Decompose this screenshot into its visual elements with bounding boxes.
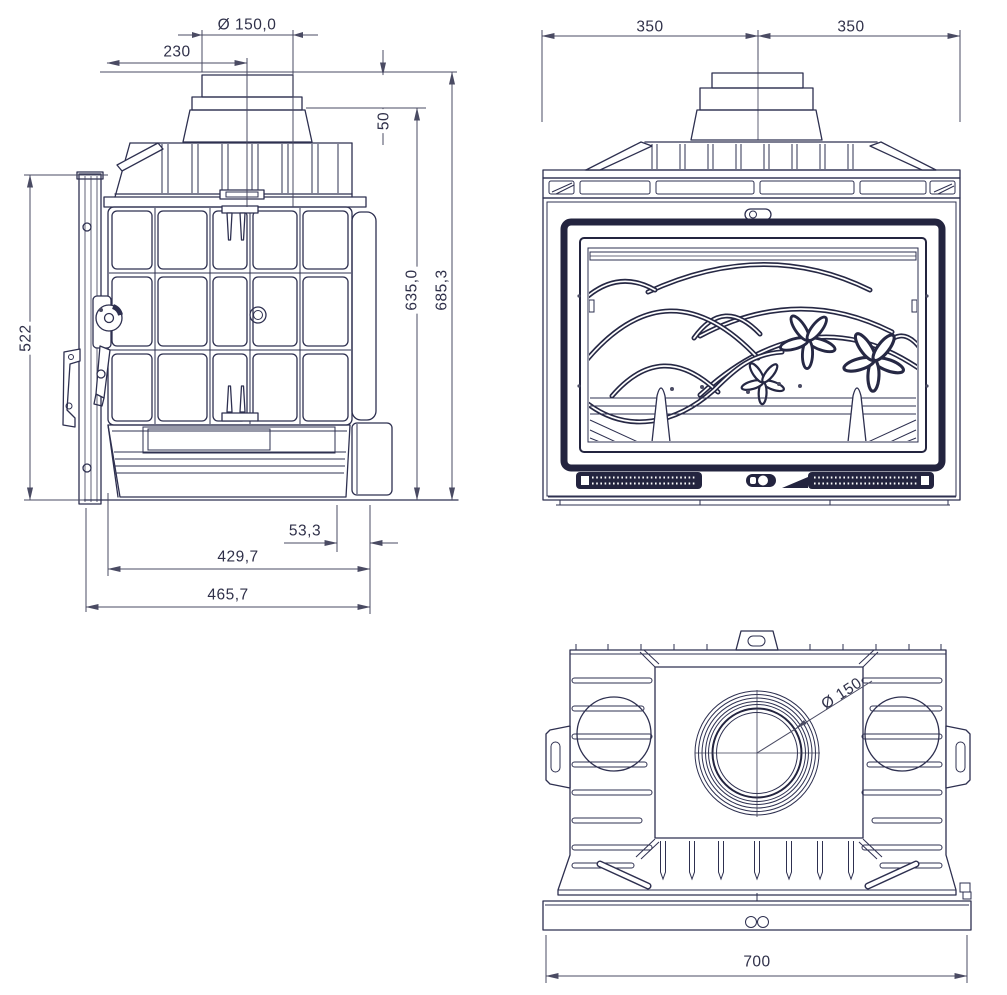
dim-front-right-half: 350 xyxy=(834,19,867,35)
dim-pipe-center-offset: 230 xyxy=(160,44,193,60)
dim-door-height: 522 xyxy=(18,321,34,354)
dim-body-depth: 429,7 xyxy=(214,549,261,565)
dim-pipe-diameter: Ø 150,0 xyxy=(215,17,280,33)
dim-total-height: 685,3 xyxy=(434,266,450,313)
dim-total-depth: 465,7 xyxy=(204,587,251,603)
front-view xyxy=(543,34,960,505)
dim-front-left-half: 350 xyxy=(633,19,666,35)
technical-drawing-page: Ø 150,0 230 50 635,0 685,3 522 53,3 429,… xyxy=(0,0,1007,995)
top-view xyxy=(543,631,971,930)
dim-total-width: 700 xyxy=(740,954,773,970)
front-view-dimensions xyxy=(542,30,960,122)
drawing-canvas xyxy=(0,0,1007,995)
dim-rear-overhang: 53,3 xyxy=(286,523,324,539)
dim-body-height: 635,0 xyxy=(404,266,420,313)
side-view xyxy=(63,75,458,504)
dim-collar-height: 50 xyxy=(376,109,392,133)
